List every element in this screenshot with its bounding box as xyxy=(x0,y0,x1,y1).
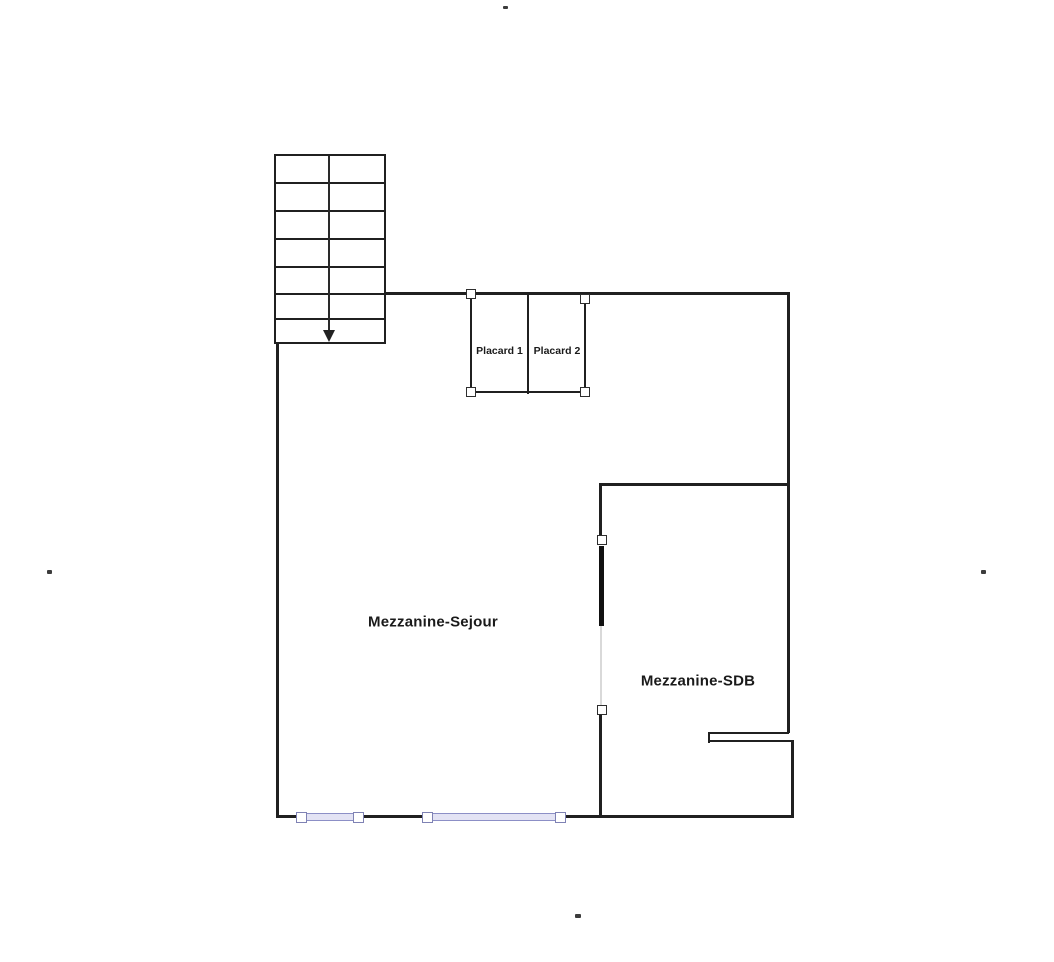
window-selection-handle[interactable] xyxy=(555,812,566,823)
stair-tread xyxy=(276,318,384,320)
window[interactable] xyxy=(428,813,562,821)
stair-tread xyxy=(276,266,384,268)
closet-selection-handle[interactable] xyxy=(466,289,476,299)
stair-tread xyxy=(276,210,384,212)
closet-label-placard-1: Placard 1 xyxy=(476,345,523,357)
wall-left xyxy=(276,344,279,818)
sdb-wall-left-upper xyxy=(599,483,602,538)
arrow-down-icon xyxy=(323,330,335,342)
wall-notch-top xyxy=(708,732,789,734)
stair-arrow-shaft xyxy=(328,156,330,332)
crop-mark-top xyxy=(503,6,508,9)
window-selection-handle[interactable] xyxy=(353,812,364,823)
staircase[interactable] xyxy=(274,154,386,344)
floor-plan-canvas: Placard 1 Placard 2 Mezzanine-Sejour Mez… xyxy=(0,0,1054,962)
room-label-mezzanine-sejour: Mezzanine-Sejour xyxy=(368,614,498,631)
door-leaf[interactable] xyxy=(599,546,605,626)
closet-label-placard-2: Placard 2 xyxy=(534,345,581,357)
stair-tread xyxy=(276,182,384,184)
closet-selection-handle[interactable] xyxy=(580,387,590,397)
closet-wall-left xyxy=(470,292,472,394)
sdb-wall-top xyxy=(600,483,790,486)
crop-mark-left xyxy=(47,570,52,574)
room-label-mezzanine-sdb: Mezzanine-SDB xyxy=(641,673,755,690)
wall-right-upper xyxy=(787,292,790,733)
crop-mark-bottom xyxy=(575,914,581,918)
door-selection-handle[interactable] xyxy=(597,535,607,545)
window-selection-handle[interactable] xyxy=(296,812,307,823)
crop-mark-right xyxy=(981,570,986,574)
door-selection-handle[interactable] xyxy=(597,705,607,715)
window[interactable] xyxy=(301,813,359,821)
window-selection-handle[interactable] xyxy=(422,812,433,823)
closet-wall-right xyxy=(584,296,586,394)
closet-selection-handle[interactable] xyxy=(580,294,590,304)
stair-tread xyxy=(276,238,384,240)
wall-notch-bottom xyxy=(708,740,794,742)
closet-wall-divider xyxy=(527,292,529,394)
closet-selection-handle[interactable] xyxy=(466,387,476,397)
door-track xyxy=(600,624,602,708)
sdb-wall-left-lower xyxy=(599,714,602,818)
wall-right-lower xyxy=(791,740,794,818)
closet-wall-bottom xyxy=(470,391,586,393)
stair-tread xyxy=(276,293,384,295)
